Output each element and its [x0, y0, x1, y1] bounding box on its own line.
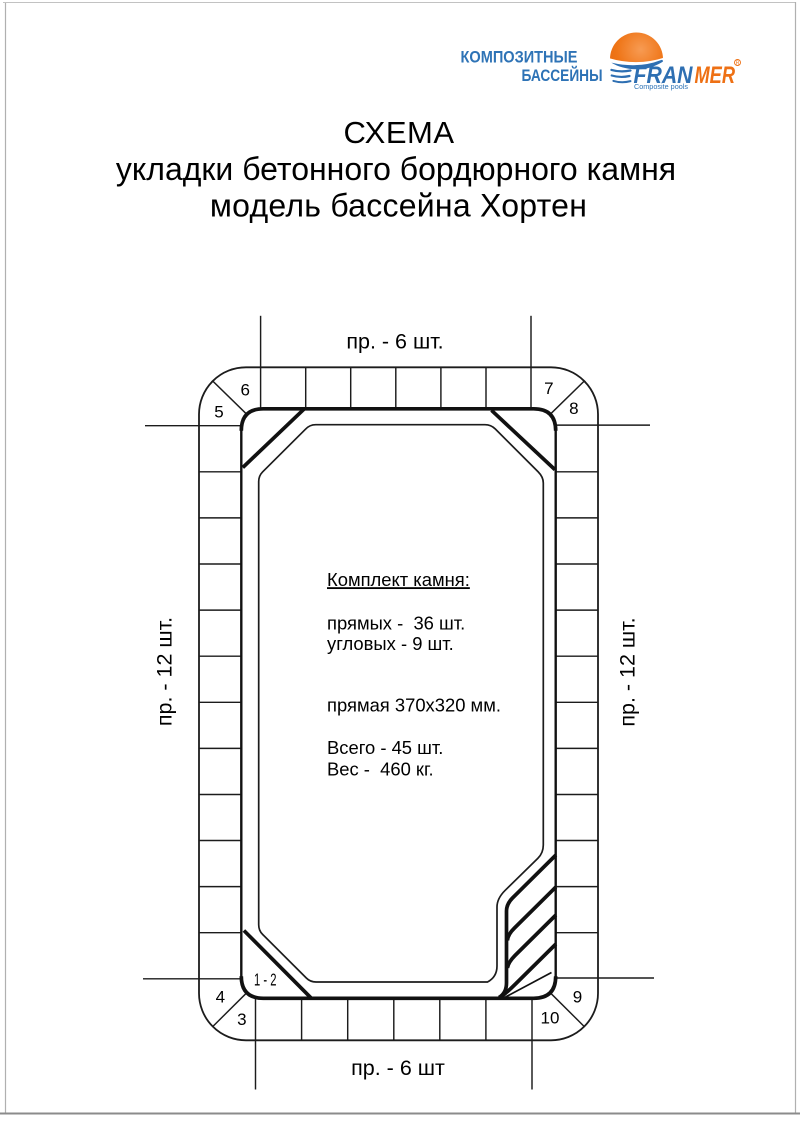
- svg-text:Вес - 460 кг.: Вес - 460 кг.: [327, 759, 434, 780]
- svg-text:3: 3: [237, 1010, 246, 1029]
- svg-text:пр. - 6 шт.: пр. - 6 шт.: [346, 330, 443, 354]
- svg-text:1 - 2: 1 - 2: [254, 970, 277, 990]
- svg-text:угловых - 9 шт.: угловых - 9 шт.: [327, 633, 454, 654]
- svg-text:8: 8: [569, 399, 578, 418]
- svg-text:пр. - 12 шт.: пр. - 12 шт.: [616, 617, 640, 726]
- svg-text:СХЕМА: СХЕМА: [344, 115, 455, 150]
- svg-text:9: 9: [573, 987, 582, 1006]
- svg-text:прямая 370х320 мм.: прямая 370х320 мм.: [327, 695, 501, 716]
- svg-text:6: 6: [240, 381, 249, 400]
- svg-text:MER: MER: [695, 62, 736, 89]
- svg-text:5: 5: [214, 403, 223, 422]
- svg-text:пр. - 6 шт: пр. - 6 шт: [351, 1056, 445, 1080]
- svg-text:4: 4: [216, 988, 225, 1007]
- svg-text:БАССЕЙНЫ: БАССЕЙНЫ: [522, 66, 603, 85]
- svg-text:7: 7: [544, 379, 553, 398]
- svg-text:укладки бетонного бордюрного к: укладки бетонного бордюрного камня: [116, 151, 676, 187]
- svg-text:пр. - 12 шт.: пр. - 12 шт.: [153, 617, 177, 726]
- svg-text:КОМПОЗИТНЫЕ: КОМПОЗИТНЫЕ: [461, 48, 578, 66]
- svg-text:R: R: [736, 61, 740, 67]
- svg-text:Комплект камня:: Комплект камня:: [327, 569, 470, 590]
- svg-text:модель бассейна Хортен: модель бассейна Хортен: [210, 188, 587, 224]
- svg-text:Composite pools: Composite pools: [634, 82, 688, 91]
- svg-text:прямых - 36 шт.: прямых - 36 шт.: [327, 613, 465, 634]
- svg-text:Всего - 45 шт.: Всего - 45 шт.: [327, 737, 443, 758]
- svg-text:10: 10: [541, 1009, 560, 1028]
